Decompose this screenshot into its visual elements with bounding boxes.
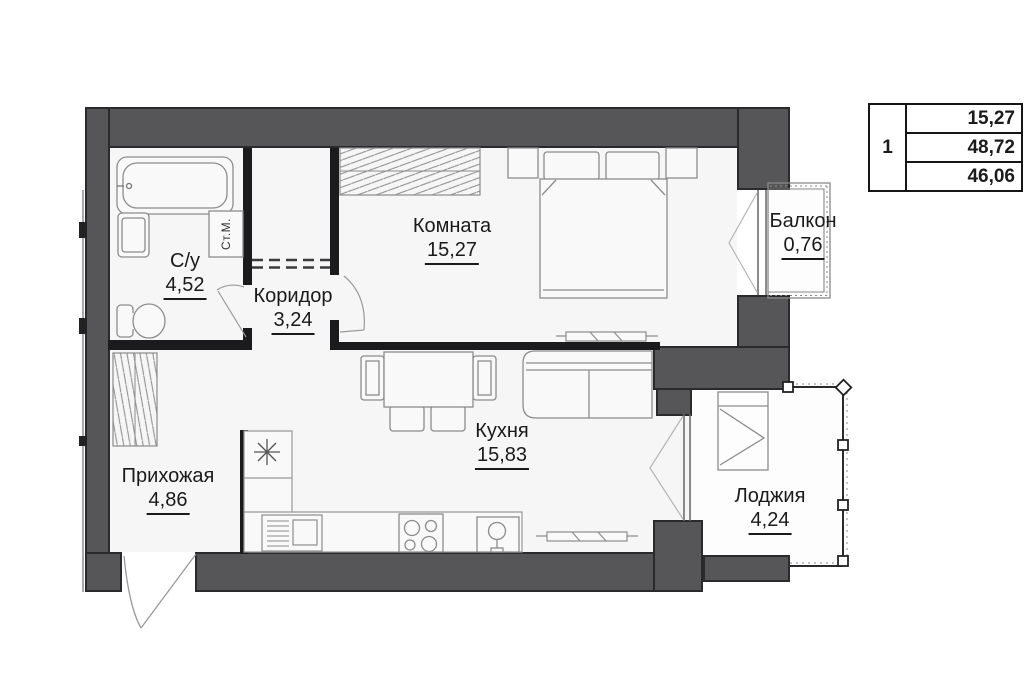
room-name: Коридор <box>254 285 333 307</box>
room-radiator-icon <box>556 332 658 341</box>
stove-icon <box>399 514 443 552</box>
bed-icon <box>508 148 697 298</box>
loggia-window-icon <box>650 414 690 521</box>
room-area: 4,52 <box>164 274 207 299</box>
washing-machine-label: Ст.М. <box>219 218 233 250</box>
pillow-left-icon <box>544 152 599 180</box>
area-value-cell: 15,27 <box>906 104 1022 133</box>
entrance-door-icon <box>124 554 196 628</box>
sofa-icon <box>523 351 652 418</box>
room-wardrobe-icon <box>340 148 480 195</box>
chair-icon <box>431 406 465 431</box>
chair-icon <box>478 361 491 395</box>
room-door-icon <box>340 276 364 332</box>
room-name: Лоджия <box>735 485 806 507</box>
loggia-glazing <box>783 380 851 566</box>
room-name: Балкон <box>769 210 836 232</box>
label-room: Комната 15,27 <box>413 215 491 265</box>
room-name: С/у <box>164 250 207 272</box>
room-area: 0,76 <box>782 234 825 259</box>
room-area: 4,86 <box>147 489 190 514</box>
pillow-right-icon <box>606 152 659 180</box>
area-value-cell: 48,72 <box>906 133 1022 162</box>
room-area: 4,24 <box>749 509 792 534</box>
label-loggia: Лоджия 4,24 <box>735 485 806 535</box>
room-area: 15,27 <box>425 239 479 264</box>
chair-icon <box>390 406 424 431</box>
kitchen-sink-icon <box>477 517 519 552</box>
floor-plan: С/у 4,52 Коридор 3,24 Комната 15,27 Балк… <box>0 0 1024 688</box>
fridge-icon <box>262 515 322 551</box>
label-hallway: Прихожая 4,86 <box>122 465 215 515</box>
unit-number-cell: 1 <box>869 104 906 191</box>
label-bathroom: С/у 4,52 <box>164 250 207 300</box>
room-name: Прихожая <box>122 465 215 487</box>
area-info-table: 1 15,27 48,72 46,06 <box>868 103 1023 192</box>
bathroom-sink-icon <box>118 213 149 257</box>
hallway-wardrobe-icon <box>113 353 157 446</box>
nightstand-left-icon <box>508 148 538 178</box>
room-name: Кухня <box>475 420 529 442</box>
corridor-dashed-lines <box>252 260 330 268</box>
label-corridor: Коридор 3,24 <box>254 285 333 335</box>
bathroom-door-icon <box>217 285 246 337</box>
area-value-cell: 46,06 <box>906 162 1022 191</box>
room-name: Комната <box>413 215 491 237</box>
lounger-icon <box>718 392 768 470</box>
label-kitchen: Кухня 15,83 <box>475 420 529 470</box>
balcony-window-icon <box>729 190 766 295</box>
bathtub-icon <box>117 157 233 214</box>
chair-icon <box>366 361 379 395</box>
kitchen-radiator-icon <box>536 532 638 541</box>
label-balcony: Балкон 0,76 <box>769 210 836 260</box>
room-area: 3,24 <box>272 309 315 334</box>
nightstand-right-icon <box>666 148 697 178</box>
toilet-icon <box>117 304 165 338</box>
room-area: 15,83 <box>475 444 529 469</box>
